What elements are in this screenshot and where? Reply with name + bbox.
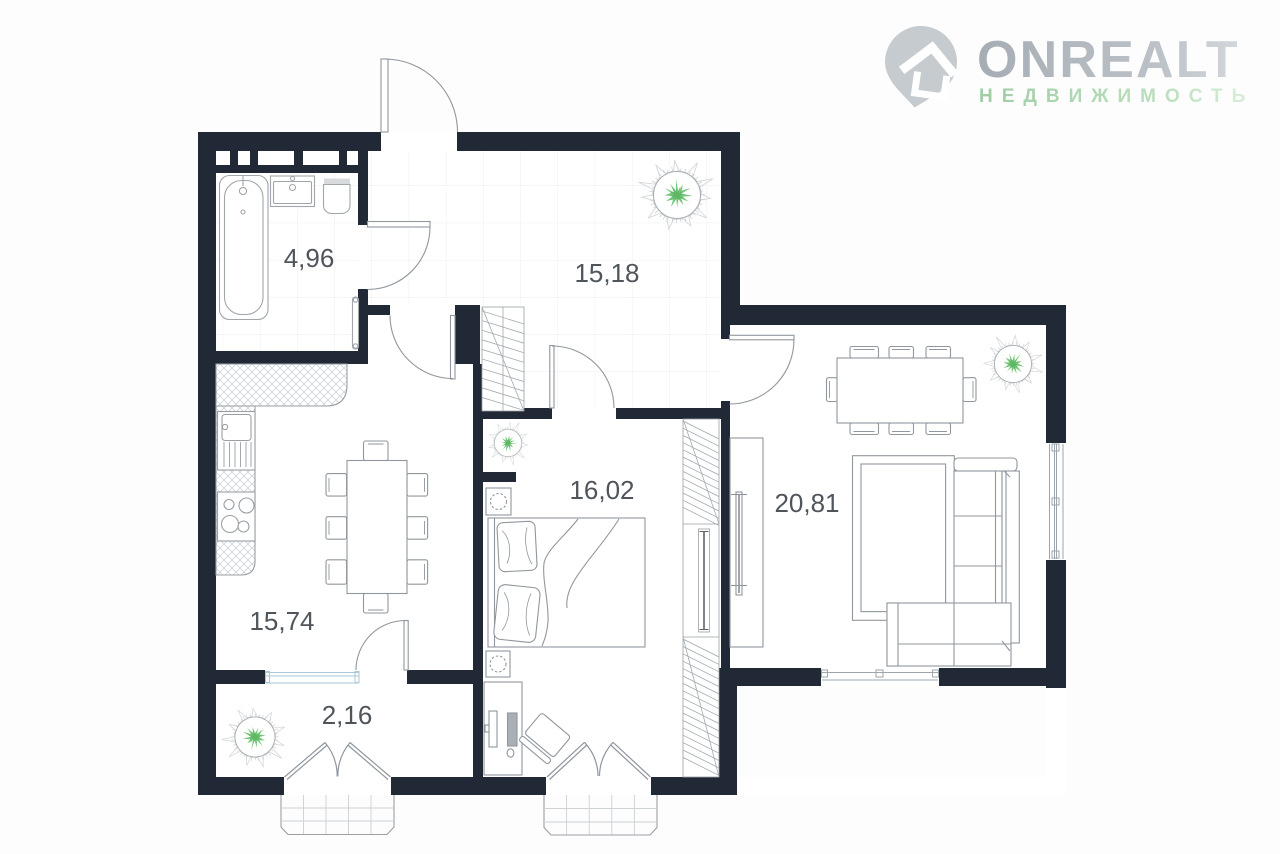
svg-text:20,81: 20,81 [774, 488, 839, 518]
svg-text:НЕДВИЖИМОСТЬ: НЕДВИЖИМОСТЬ [979, 86, 1254, 107]
svg-text:ONREALT: ONREALT [977, 31, 1240, 89]
svg-text:2,16: 2,16 [322, 700, 373, 730]
svg-text:16,02: 16,02 [569, 475, 634, 505]
svg-text:15,18: 15,18 [574, 258, 639, 288]
svg-text:4,96: 4,96 [284, 243, 335, 273]
svg-text:15,74: 15,74 [249, 606, 314, 636]
